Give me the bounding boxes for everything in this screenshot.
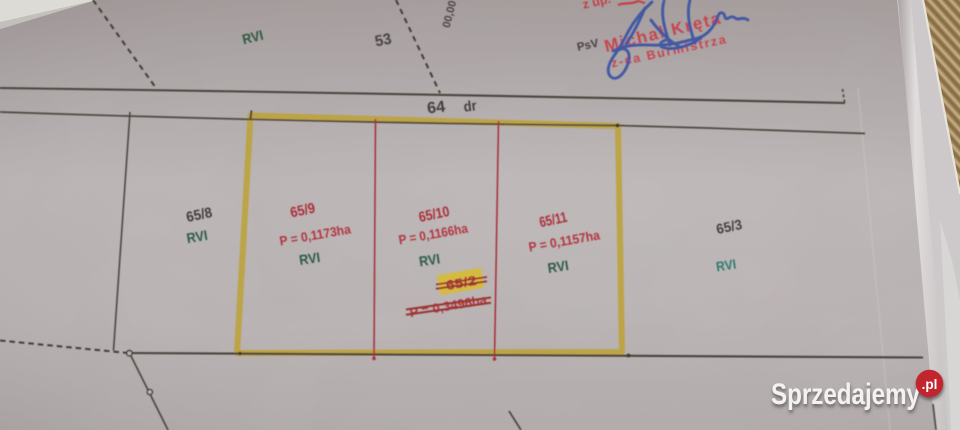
svg-text:dr: dr [463,98,478,116]
svg-text:RVI: RVI [418,250,441,269]
svg-text:64: 64 [426,98,446,117]
svg-text:RVI: RVI [715,257,737,275]
svg-text:.pl: .pl [922,377,938,392]
svg-text:RVI: RVI [298,249,321,268]
svg-text:RVI: RVI [546,257,569,276]
svg-text:Sprzedajemy: Sprzedajemy [771,378,920,411]
